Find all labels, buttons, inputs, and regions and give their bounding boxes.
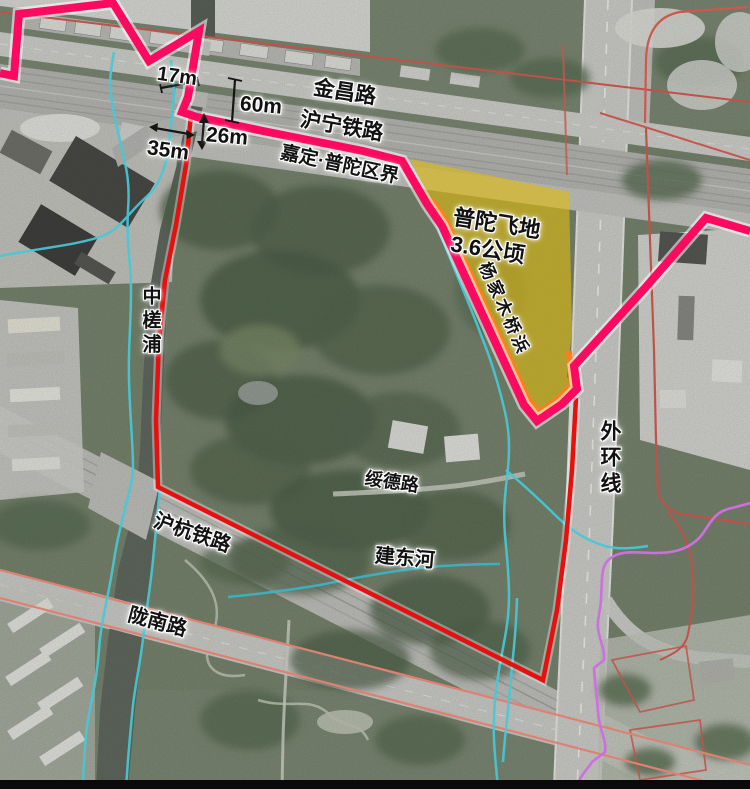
- satellite-planning-map: 金昌路 沪宁铁路 嘉定·普陀区界 普陀飞地 3.6公顷 杨家木桥浜 中槎浦 外环…: [0, 0, 750, 789]
- bottom-black-bar: [0, 780, 750, 789]
- label-outer-ring: 外环线: [594, 420, 624, 498]
- label-zhongcha-creek: 中槎浦: [137, 286, 164, 358]
- label-jiandong-river: 建东河: [374, 539, 436, 573]
- measurement-26m: 26m: [205, 123, 249, 151]
- measurement-60m: 60m: [239, 92, 283, 120]
